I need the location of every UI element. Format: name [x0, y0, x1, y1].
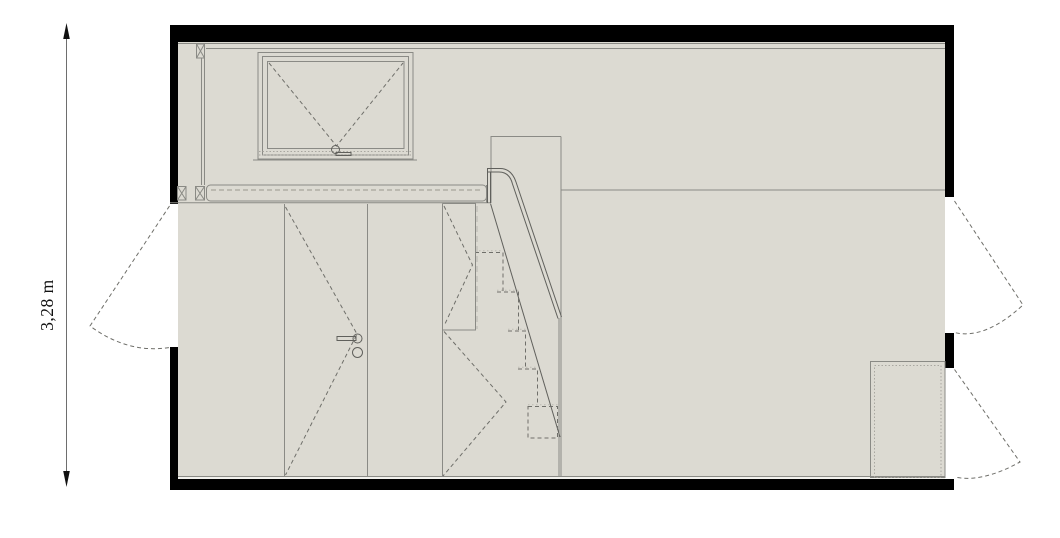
- section-drawing-canvas: 3,28 m: [0, 0, 1060, 538]
- dimension-label: 3,28 m: [37, 279, 57, 331]
- right-lower-window-swing-arc: [955, 370, 1021, 479]
- height-dimension: 3,28 m: [37, 23, 70, 487]
- dimension-arrow-up-icon: [63, 23, 70, 39]
- floor-section-drawing: 3,28 m: [0, 0, 1060, 538]
- dimension-arrow-down-icon: [63, 471, 70, 487]
- right-upper-window-swing-arc: [955, 201, 1024, 334]
- left-window-swing-arc: [90, 206, 170, 349]
